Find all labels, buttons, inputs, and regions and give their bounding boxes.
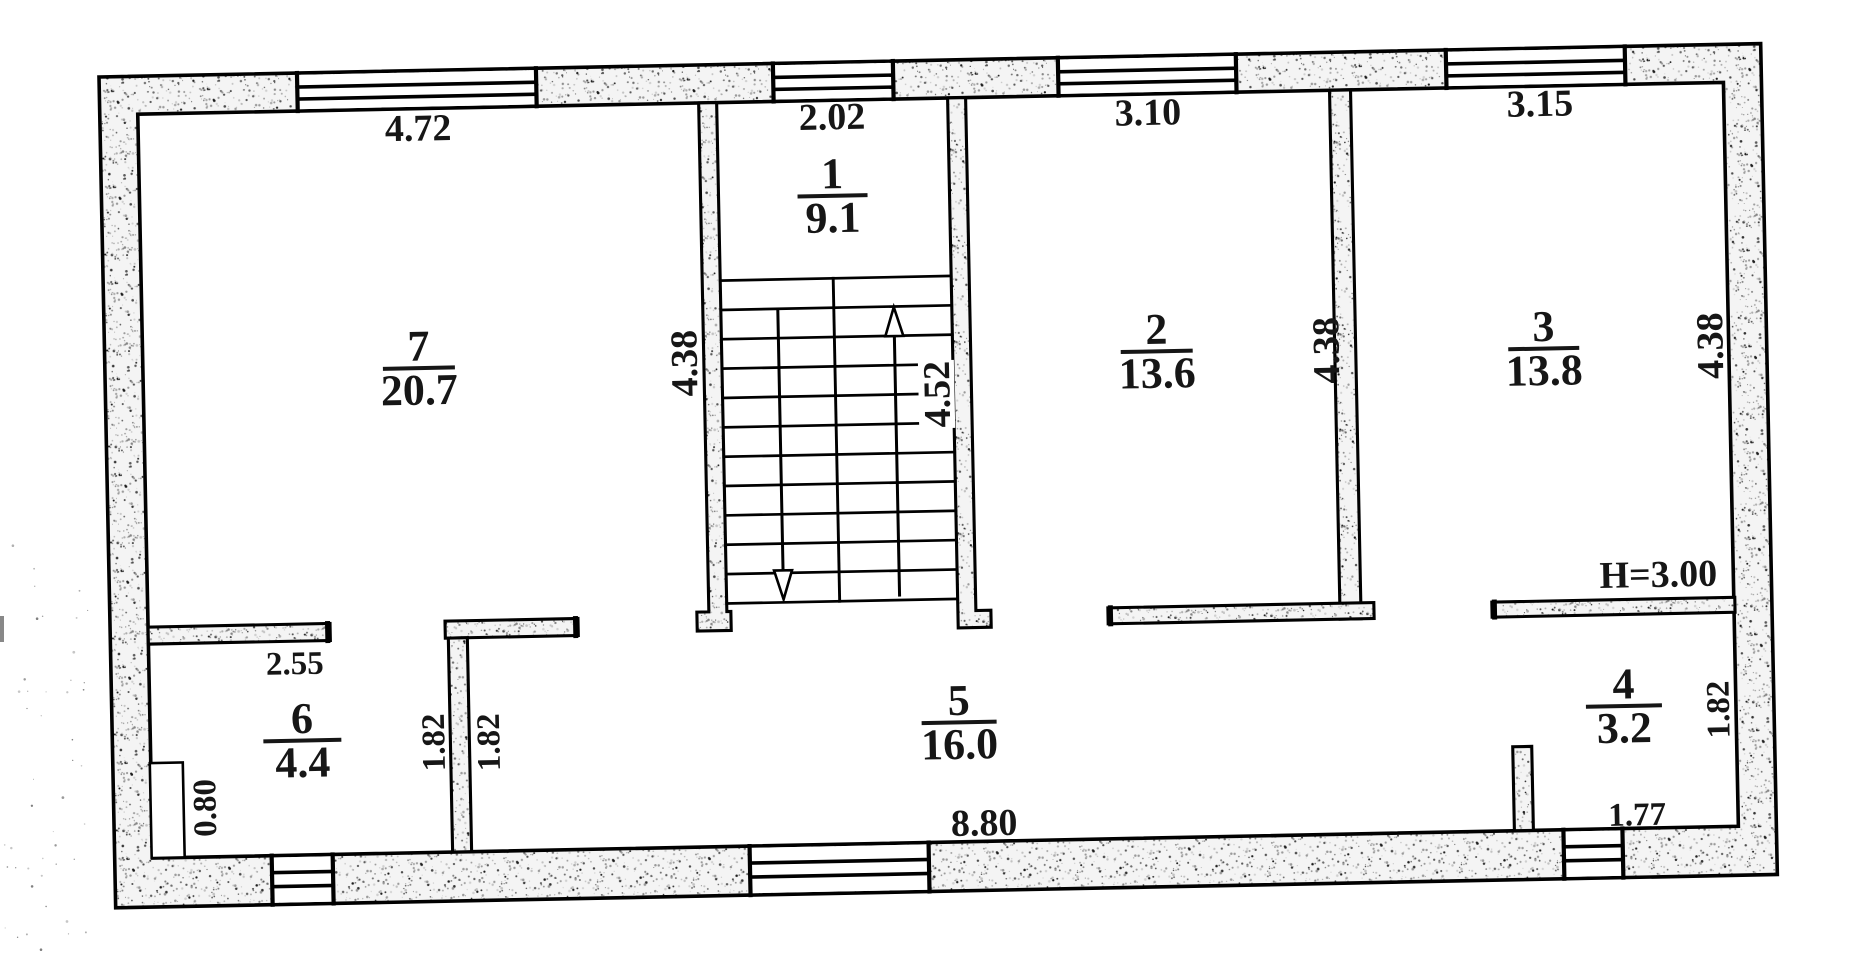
- svg-text:4.52: 4.52: [916, 361, 959, 428]
- svg-text:5: 5: [947, 676, 970, 725]
- svg-text:1.77: 1.77: [1608, 797, 1666, 834]
- svg-text:3: 3: [1532, 302, 1555, 351]
- svg-text:1.82: 1.82: [416, 713, 453, 771]
- svg-text:16.0: 16.0: [921, 719, 999, 770]
- svg-text:9.1: 9.1: [805, 193, 861, 243]
- svg-text:3.10: 3.10: [1114, 91, 1181, 134]
- svg-text:1.82: 1.82: [1700, 680, 1737, 738]
- svg-text:4.4: 4.4: [275, 738, 331, 788]
- svg-text:4.38: 4.38: [1689, 312, 1732, 379]
- svg-text:3.2: 3.2: [1596, 703, 1652, 753]
- svg-text:H=3.00: H=3.00: [1599, 553, 1718, 597]
- svg-text:4.38: 4.38: [663, 330, 706, 397]
- svg-text:4: 4: [1612, 659, 1635, 708]
- svg-text:7: 7: [407, 321, 430, 370]
- svg-text:3.15: 3.15: [1506, 82, 1573, 125]
- svg-text:4.38: 4.38: [1305, 317, 1348, 384]
- svg-text:20.7: 20.7: [380, 365, 458, 416]
- svg-text:1: 1: [821, 149, 844, 198]
- svg-text:1.82: 1.82: [471, 713, 508, 771]
- svg-text:8.80: 8.80: [950, 802, 1017, 845]
- svg-text:13.8: 13.8: [1505, 345, 1583, 396]
- svg-text:6: 6: [290, 694, 313, 743]
- svg-text:2: 2: [1145, 305, 1168, 354]
- svg-text:13.6: 13.6: [1118, 348, 1196, 399]
- svg-text:2.02: 2.02: [798, 96, 865, 139]
- svg-text:4.72: 4.72: [384, 107, 451, 150]
- svg-text:2.55: 2.55: [266, 646, 324, 683]
- svg-text:0.80: 0.80: [187, 779, 224, 837]
